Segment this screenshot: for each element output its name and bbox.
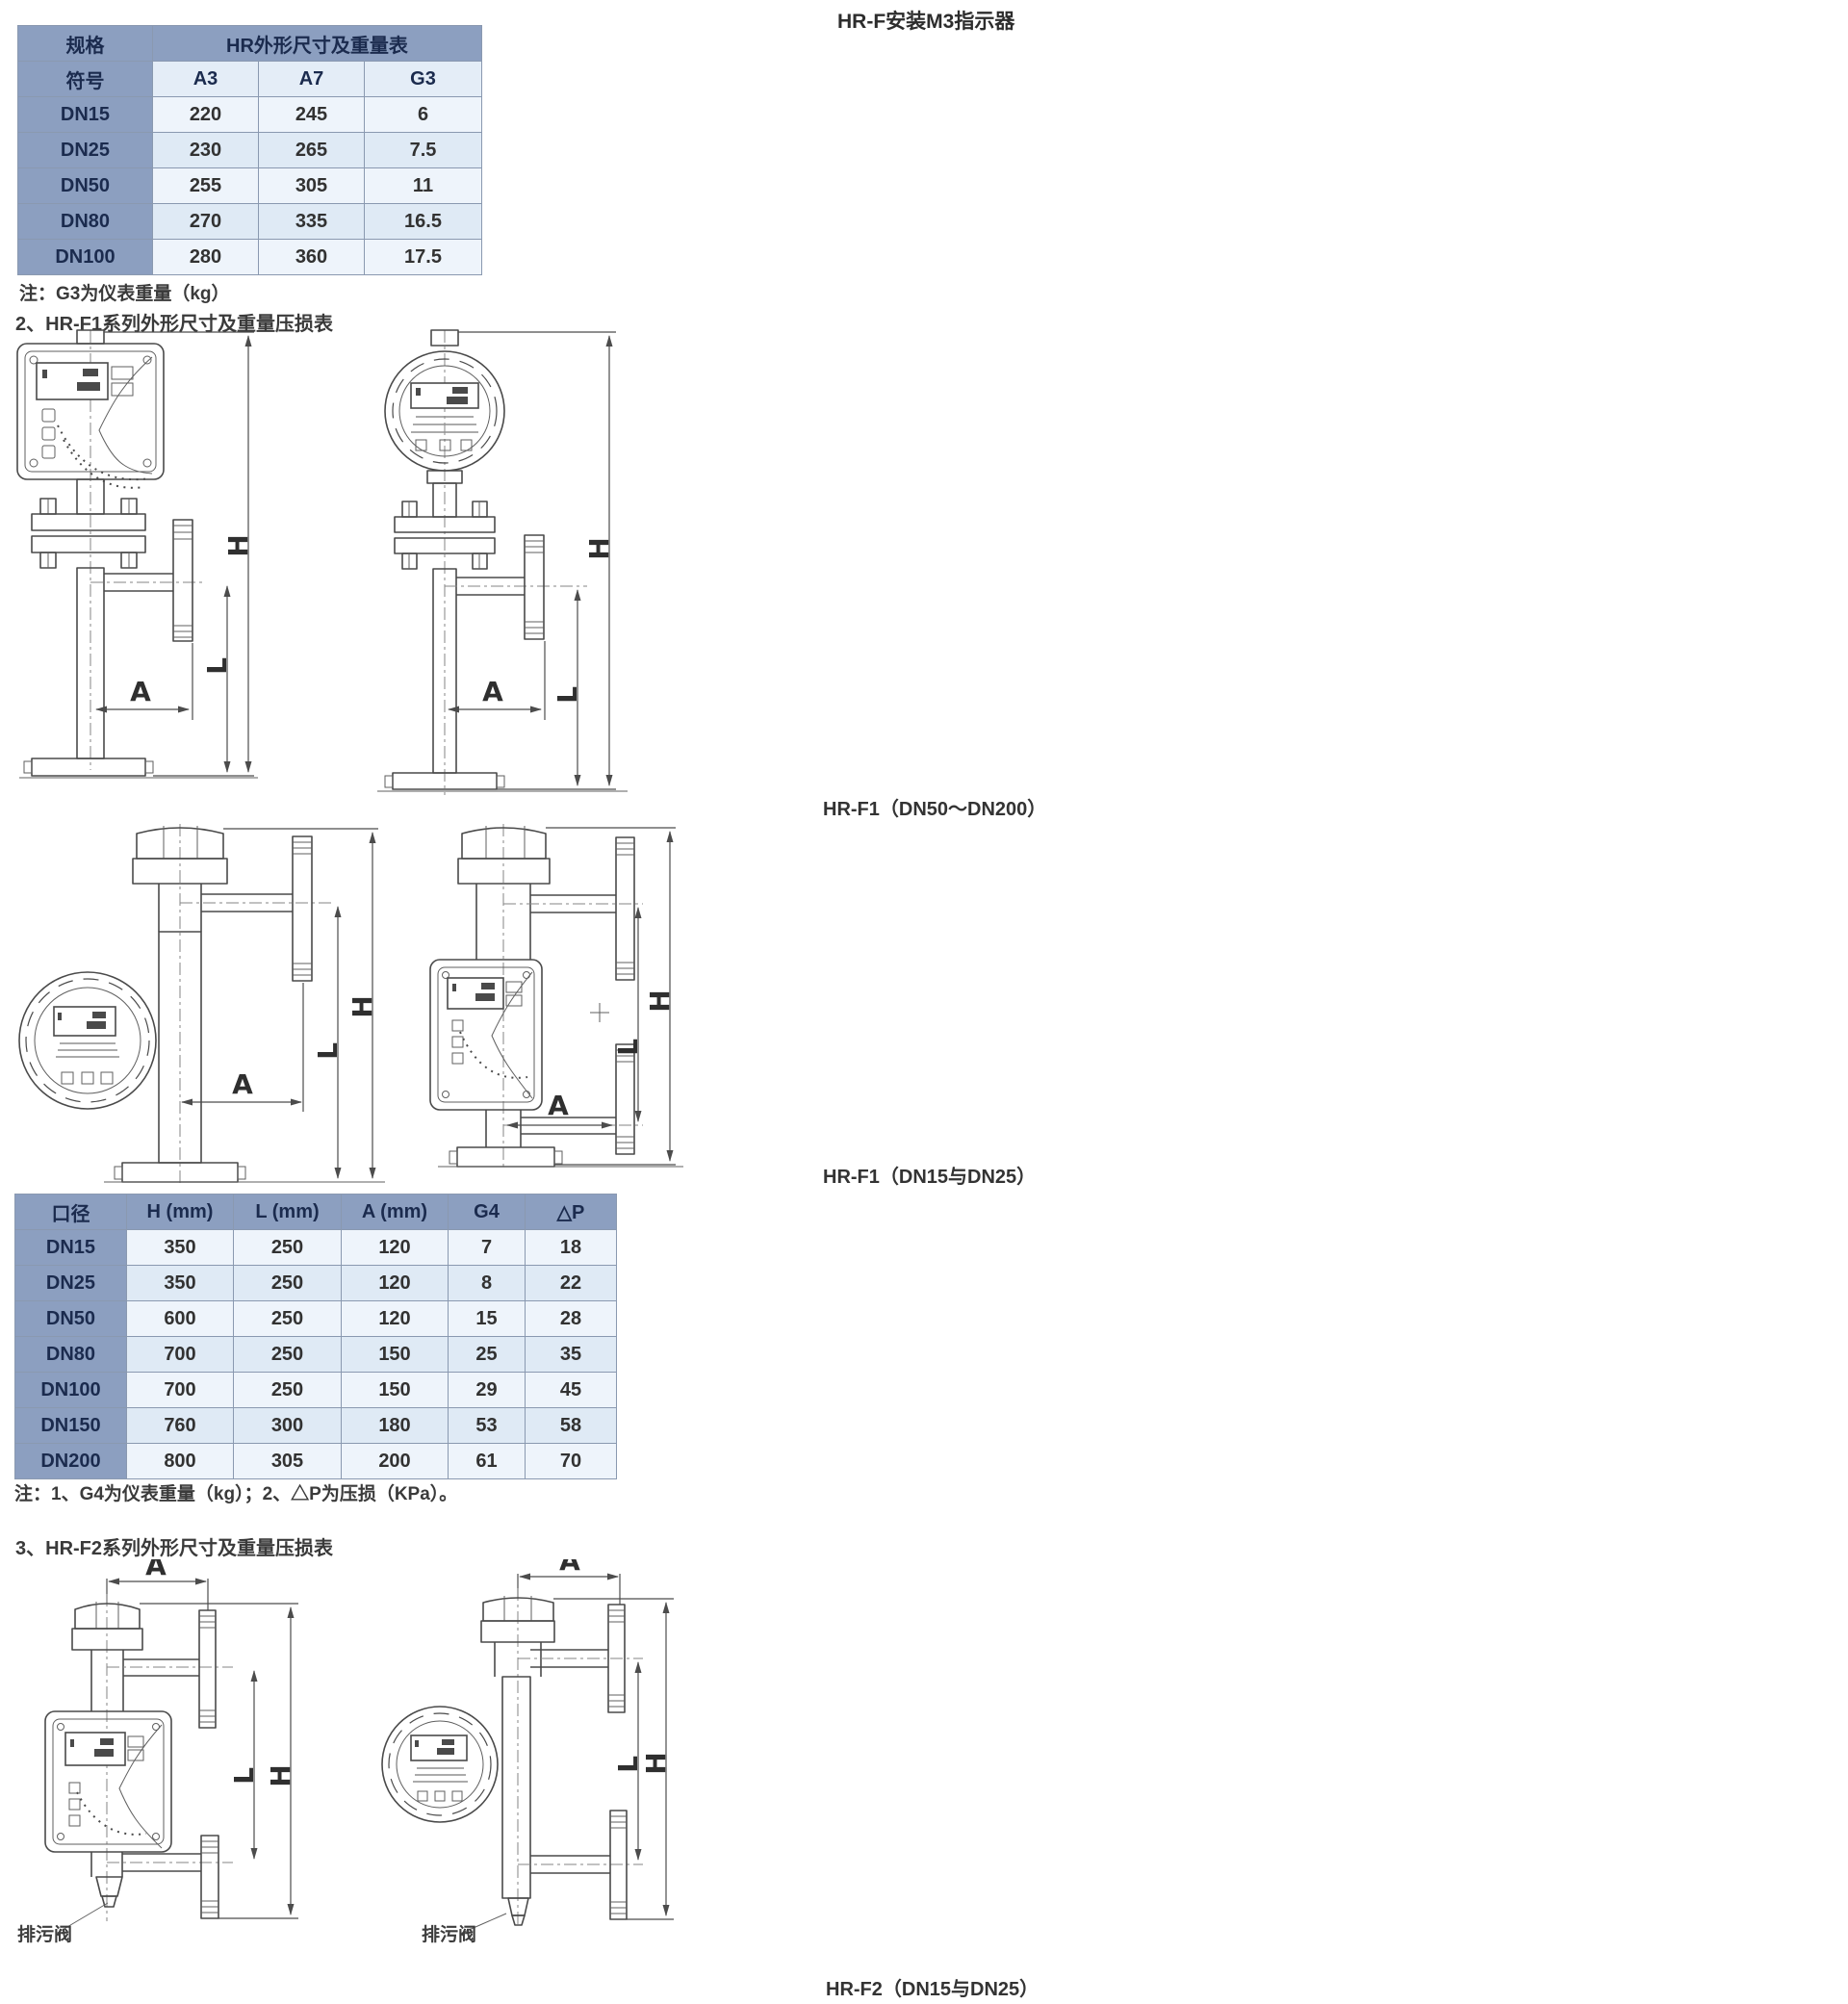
cell: 350 [127,1230,234,1266]
process-flange [32,499,145,568]
row-label: DN80 [18,204,153,240]
figure-hrf2-square-head: A [0,1559,318,1954]
keypad-button [416,440,426,450]
side-port-bottom [503,1003,643,1154]
keypad-button [42,427,55,440]
table2-header-a: A (mm) [342,1195,449,1230]
cell: 16.5 [365,204,482,240]
row-label: DN25 [15,1266,127,1301]
table-row: DN200 800 305 200 61 70 [15,1444,617,1479]
keypad-button [42,446,55,458]
keypad-button [101,1072,113,1084]
table2-header-g4: G4 [449,1195,526,1230]
cell: 58 [526,1408,617,1444]
cell: 17.5 [365,240,482,275]
cell: 120 [342,1230,449,1266]
table-row: DN100 700 250 150 29 45 [15,1373,617,1408]
dim-label-a: A [559,1559,580,1577]
cell: 250 [234,1337,342,1373]
keypad-button [42,409,55,422]
base-flange [104,1163,385,1182]
instrument-head [45,1711,171,1852]
figure-hrf1-large-square-head: H L A [0,323,269,791]
row-label: DN150 [15,1408,127,1444]
drain-valve-label: 排污阀 [422,1923,476,1945]
cell: 150 [342,1337,449,1373]
keypad-button [62,1072,73,1084]
cell: 700 [127,1337,234,1373]
table1-corner-bottom: 符号 [18,62,153,97]
figure-hrf1-small-square-head: H L A [395,818,693,1194]
keypad-button [69,1815,80,1826]
dim-label-h: H [265,1764,296,1786]
cell: 7 [449,1230,526,1266]
cell: 120 [342,1266,449,1301]
cell: 18 [526,1230,617,1266]
side-port [445,535,587,639]
keypad-button [69,1783,80,1793]
cell: 120 [342,1301,449,1337]
table-row: DN25 230 265 7.5 [18,133,482,168]
cell: 245 [259,97,365,133]
dim-label-a: A [232,1068,253,1100]
cell: 8 [449,1266,526,1301]
cell: 255 [153,168,259,204]
table-row: DN100 280 360 17.5 [18,240,482,275]
dim-label-h: H [640,1752,672,1774]
keypad-button [452,1791,462,1801]
row-label: DN100 [15,1373,127,1408]
figure-hrf1-small-round-head: H L A [0,818,395,1194]
table1-col-a7: A7 [259,62,365,97]
dim-label-a: A [145,1559,167,1581]
dim-label-h: H [644,989,676,1012]
table-row: DN50 600 250 120 15 28 [15,1301,617,1337]
cell: 280 [153,240,259,275]
section3-heading: 3、HR-F2系列外形尺寸及重量压损表 [15,1532,333,1560]
cell: 305 [259,168,365,204]
cell: 7.5 [365,133,482,168]
table-row: DN80 270 335 16.5 [18,204,482,240]
dim-label-l: L [612,1039,644,1056]
cell: 220 [153,97,259,133]
dim-label-h: H [346,995,378,1017]
base-flange [377,773,628,791]
row-label: DN100 [18,240,153,275]
lcd-display [37,363,108,399]
instrument-head [17,344,164,488]
cell: 11 [365,168,482,204]
cell: 230 [153,133,259,168]
cell: 28 [526,1301,617,1337]
dimension-a: A [107,1559,208,1610]
cell: 250 [234,1301,342,1337]
figure-caption-f1-large: HR-F1（DN50～DN200） [823,793,1046,821]
table2-note: 注：1、G4为仪表重量（kg）；2、△P为压损（KPa）。 [14,1479,457,1505]
dim-label-l: L [552,686,583,704]
cell: 300 [234,1408,342,1444]
keypad-button [452,1037,463,1047]
table2-header-l: L (mm) [234,1195,342,1230]
side-port [90,520,206,641]
datasheet-page: HR-F安装M3指示器 规格 HR外形尺寸及重量表 符号 A3 A7 G3 DN… [0,0,1848,2004]
cell: 265 [259,133,365,168]
dim-label-a: A [482,676,503,707]
table-row: DN80 700 250 150 25 35 [15,1337,617,1373]
cell: 35 [526,1337,617,1373]
figure-hrf2-round-head: A [318,1559,693,1954]
dimension-lines: H L A [182,829,378,1178]
dimension-lines: H L A [507,828,676,1165]
cell: 350 [127,1266,234,1301]
row-label: DN15 [15,1230,127,1266]
table1-note: 注：G3为仪表重量（kg） [19,279,230,305]
table-row: DN25 350 250 120 8 22 [15,1266,617,1301]
table2-header-dp: △P [526,1195,617,1230]
cell: 250 [234,1230,342,1266]
cell: 305 [234,1444,342,1479]
cell: 335 [259,204,365,240]
cell: 360 [259,240,365,275]
figure-hrf1-large-round-head: H L A [279,323,635,837]
dim-label-l: L [228,1767,260,1785]
figure-caption-f1-small: HR-F1（DN15与DN25） [823,1161,1036,1189]
cell: 45 [526,1373,617,1408]
table-row: 口径 H (mm) L (mm) A (mm) G4 △P [15,1195,617,1230]
keypad-button [452,1053,463,1064]
keypad-button [82,1072,93,1084]
base-flange [438,1147,683,1167]
round-indicator-head [19,972,156,1109]
table2-header-dn: 口径 [15,1195,127,1230]
keypad-button [69,1799,80,1810]
table-row: DN150 760 300 180 53 58 [15,1408,617,1444]
cell: 600 [127,1301,234,1337]
lcd-display [411,383,478,408]
round-indicator-head [382,1707,498,1822]
drain-valve-label: 排污阀 [17,1923,72,1945]
dim-label-l: L [201,657,233,675]
table1-title: HR外形尺寸及重量表 [153,26,482,62]
cell: 29 [449,1373,526,1408]
row-label: DN200 [15,1444,127,1479]
side-port-bottom [518,1811,643,1919]
cell: 70 [526,1444,617,1479]
dim-label-h: H [222,534,254,556]
keypad-button [435,1791,445,1801]
table2-header-h: H (mm) [127,1195,234,1230]
cell: 53 [449,1408,526,1444]
dim-label-h: H [583,537,615,559]
instrument-head [430,960,542,1110]
table-row: DN15 220 245 6 [18,97,482,133]
base-flange [19,758,258,778]
table1-col-g3: G3 [365,62,482,97]
cell: 61 [449,1444,526,1479]
row-label: DN50 [15,1301,127,1337]
cell: 700 [127,1373,234,1408]
cell: 250 [234,1373,342,1408]
lcd-display [54,1007,115,1036]
dim-label-a: A [130,676,151,707]
table1-col-a3: A3 [153,62,259,97]
cell: 22 [526,1266,617,1301]
dimension-a: A [518,1559,620,1605]
cell: 800 [127,1444,234,1479]
row-label: DN15 [18,97,153,133]
table1-corner-top: 规格 [18,26,153,62]
cell: 25 [449,1337,526,1373]
dimension-lines: L H [553,1599,674,1919]
keypad-button [452,1020,463,1031]
page-caption-m3-indicator: HR-F安装M3指示器 [837,6,1014,35]
keypad-button [418,1791,427,1801]
cell: 270 [153,204,259,240]
table-row: 符号 A3 A7 G3 [18,62,482,97]
cell: 250 [234,1266,342,1301]
process-flange [395,501,495,569]
table-row: 规格 HR外形尺寸及重量表 [18,26,482,62]
dim-label-a: A [548,1090,569,1121]
hr-dimensions-weight-table: 规格 HR外形尺寸及重量表 符号 A3 A7 G3 DN15 220 245 6… [17,25,482,275]
row-label: DN50 [18,168,153,204]
dimension-lines: H L A [96,332,254,776]
row-label: DN80 [15,1337,127,1373]
figure-caption-f2-small: HR-F2（DN15与DN25） [826,1973,1039,2001]
cell: 760 [127,1408,234,1444]
cell: 150 [342,1373,449,1408]
cell: 180 [342,1408,449,1444]
dim-label-l: L [312,1042,344,1060]
cell: 200 [342,1444,449,1479]
cell: 15 [449,1301,526,1337]
hrf1-dimensions-table: 口径 H (mm) L (mm) A (mm) G4 △P DN15 350 2… [14,1194,617,1479]
table-row: DN15 350 250 120 7 18 [15,1230,617,1266]
cell: 6 [365,97,482,133]
table-row: DN50 255 305 11 [18,168,482,204]
row-label: DN25 [18,133,153,168]
